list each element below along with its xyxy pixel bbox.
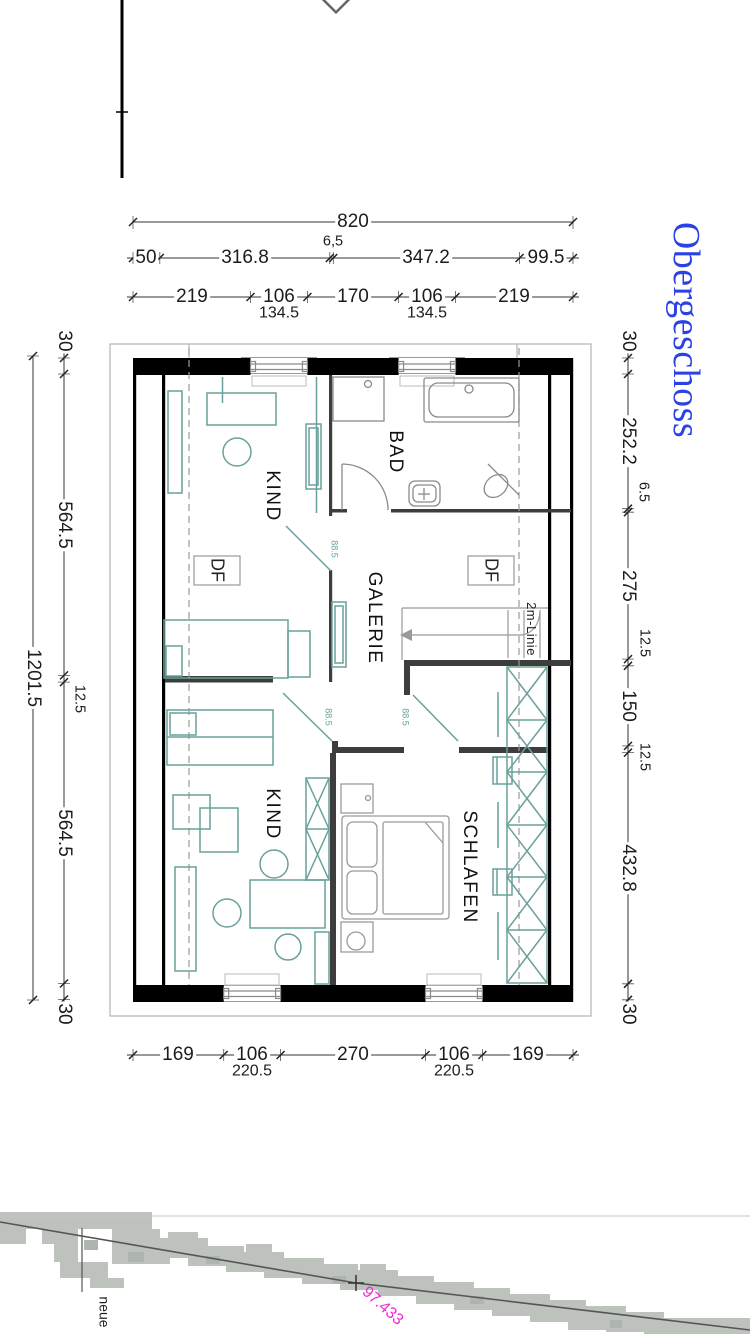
chair xyxy=(213,899,241,927)
dim: 30 xyxy=(54,328,74,353)
dim: 30 xyxy=(618,1001,638,1026)
pillow xyxy=(347,822,377,867)
dim: 12.5 xyxy=(636,742,651,772)
dim-top-total: 820 xyxy=(335,212,371,232)
room-label-galerie: GALERIE xyxy=(364,570,384,667)
dim: 169 xyxy=(510,1045,546,1065)
mattress xyxy=(383,822,443,914)
roof-window-boxes xyxy=(194,556,514,585)
room-label-schlafen: SCHLAFEN xyxy=(459,808,479,925)
roof-window-label: DF xyxy=(482,556,501,584)
chair xyxy=(223,438,251,466)
dim: 275 xyxy=(618,568,638,604)
double-bed xyxy=(341,784,449,952)
bathroom-fixtures xyxy=(333,377,519,510)
dim: 6,5 xyxy=(322,234,344,249)
dim: 219 xyxy=(496,287,532,307)
chair xyxy=(260,850,288,878)
dim-sill: 220.5 xyxy=(230,1064,274,1081)
shelf xyxy=(175,867,196,971)
dim: 316.8 xyxy=(219,248,271,268)
radiator xyxy=(332,602,346,667)
room-label-bad: BAD xyxy=(385,428,405,476)
room-label-kind-bottom: KIND xyxy=(262,786,282,841)
dim: 347.2 xyxy=(400,248,452,268)
shower xyxy=(333,377,384,421)
roof-window-label: DF xyxy=(208,556,227,584)
pillow xyxy=(347,871,377,914)
dim: 432.8 xyxy=(618,842,638,894)
toilet xyxy=(480,470,513,502)
dim: 99.5 xyxy=(526,248,567,268)
dim: 150 xyxy=(618,688,638,724)
dim-sill: 220.5 xyxy=(432,1064,476,1081)
dim: 50 xyxy=(133,248,158,268)
dim: 270 xyxy=(335,1045,371,1065)
bath-door-swing xyxy=(342,464,388,510)
side-table xyxy=(288,631,310,677)
shelf xyxy=(168,391,182,493)
desk xyxy=(207,393,276,425)
desk xyxy=(250,880,325,928)
two-meter-line-label: 2m-Linie xyxy=(524,600,538,658)
door-width-label: 88.5 xyxy=(323,708,332,726)
terrain-note-label: neue xyxy=(97,1294,112,1329)
door-width-label: 88.5 xyxy=(400,708,409,726)
dim: 30 xyxy=(618,328,638,353)
dim: 12.5 xyxy=(636,628,651,658)
diamond-marker xyxy=(318,0,355,12)
dim-left-total: 1201.5 xyxy=(23,647,43,709)
bathtub xyxy=(424,378,519,422)
page-title: Obergeschoss xyxy=(665,220,705,440)
dim: 12.5 xyxy=(71,684,86,714)
dim: 564.5 xyxy=(54,807,74,859)
terrain-section xyxy=(0,1212,750,1334)
nightstand xyxy=(341,784,373,813)
floor-plan-canvas xyxy=(0,0,750,1334)
dim: 30 xyxy=(54,1001,74,1026)
interior-walls xyxy=(165,375,571,985)
door-leaf xyxy=(286,526,331,571)
section-reference-line xyxy=(116,0,128,178)
door-leaf xyxy=(413,695,458,741)
floor-plan-page: Obergeschoss KIND BAD GALERIE KIND SCHLA… xyxy=(0,0,750,1334)
dim: 170 xyxy=(335,287,371,307)
nightstand xyxy=(341,922,373,952)
dim: 169 xyxy=(160,1045,196,1065)
chair xyxy=(275,934,301,960)
dim-sill: 134.5 xyxy=(405,306,449,323)
room-label-kind-top: KIND xyxy=(262,468,282,523)
dim: 219 xyxy=(174,287,210,307)
dim-sill: 134.5 xyxy=(257,306,301,323)
dim: 564.5 xyxy=(54,499,74,551)
dim: 6.5 xyxy=(635,481,650,503)
door-width-label: 88.5 xyxy=(329,540,338,558)
dim: 252.2 xyxy=(618,415,638,467)
